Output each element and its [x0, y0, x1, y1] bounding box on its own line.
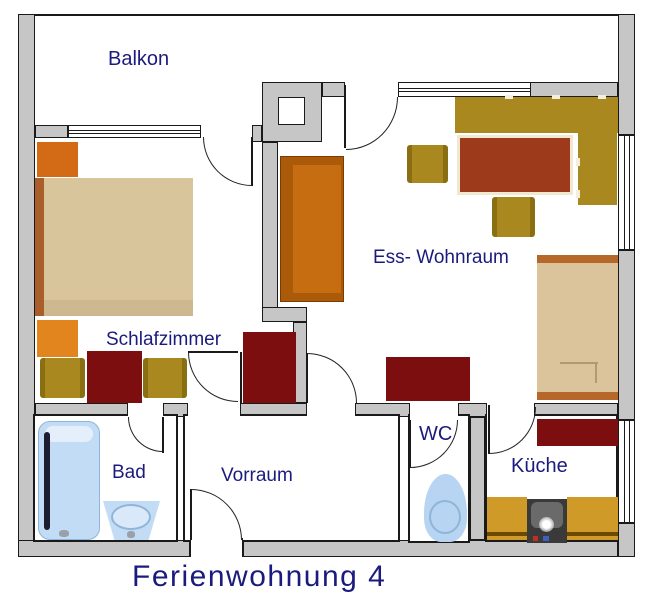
corner-bench-top — [455, 97, 618, 133]
window-glass-line — [629, 421, 630, 522]
plan-title: Ferienwohnung 4 — [132, 560, 386, 594]
room-label-kueche: Küche — [511, 455, 568, 478]
sofa — [280, 156, 344, 302]
bedroom-table — [87, 351, 142, 403]
door-swing-arc — [188, 352, 238, 402]
daybed-head-edge — [537, 255, 618, 263]
window-glass-line — [69, 133, 200, 134]
corner-bench-right — [578, 133, 617, 205]
kitchen-counter-right — [567, 497, 618, 540]
window-glass-line — [629, 136, 630, 249]
sink-faucet — [127, 531, 135, 538]
window-glass-line — [624, 421, 625, 522]
wall-right-bottom — [618, 523, 635, 557]
sink-unit-red-detail — [533, 536, 538, 541]
window-glass-line — [624, 136, 625, 249]
dining-chair — [492, 197, 535, 237]
wall-wc-kitchen — [470, 417, 485, 540]
kitchen-counter-left — [487, 497, 527, 540]
wall-balcony-living-left — [322, 82, 345, 97]
door-swing-arc — [203, 137, 252, 186]
bathtub-faucet — [59, 530, 69, 537]
daybed — [537, 255, 618, 400]
counter-edge-line — [567, 532, 618, 536]
window-glass-line — [69, 130, 200, 131]
sink-basin — [111, 504, 151, 530]
bench-notch — [552, 95, 560, 99]
bench-notch — [598, 95, 606, 99]
wardrobe — [243, 332, 296, 403]
window-bedroom — [68, 125, 201, 138]
door-opening-wc — [410, 412, 458, 418]
room-label-bad: Bad — [112, 462, 146, 484]
bathtub-highlight — [45, 426, 93, 442]
sideboard — [386, 357, 470, 401]
chair — [143, 358, 187, 398]
nightstand — [37, 142, 78, 177]
sink-unit-blue-detail — [543, 536, 549, 541]
room-label-schlafzimmer: Schlafzimmer — [106, 329, 221, 351]
door-opening-bad — [128, 402, 163, 418]
door-swing-arc — [346, 97, 398, 150]
chair — [40, 358, 85, 398]
room-label-balkon: Balkon — [108, 48, 169, 71]
room-label-vorraum: Vorraum — [221, 465, 293, 487]
door-opening-living — [307, 402, 355, 418]
wall-right-middle — [618, 250, 635, 420]
door-frame-line — [240, 352, 242, 403]
sink-unit-glare — [539, 517, 554, 532]
door-opening-entrance — [190, 538, 243, 557]
wall-bottom-left — [18, 540, 190, 557]
sofa-seat — [293, 165, 341, 293]
toilet-bowl — [429, 500, 461, 534]
kitchen-cabinet — [537, 419, 618, 446]
bench-notch — [576, 158, 580, 166]
room-label-ess-wohnraum: Ess- Wohnraum — [373, 247, 509, 269]
bench-notch — [576, 190, 580, 198]
window-glass-line — [399, 88, 530, 89]
window-glass-line — [399, 91, 530, 92]
kitchen-sink-unit — [527, 499, 567, 543]
dining-chair — [407, 145, 448, 183]
daybed-detail-line — [560, 362, 598, 364]
daybed-detail-line — [595, 363, 597, 383]
double-bed — [44, 178, 193, 316]
bathtub-shadow-edge — [44, 432, 50, 530]
bed-footer-shade — [44, 300, 193, 316]
door-swing-arc — [307, 353, 357, 403]
window-kitchen — [618, 420, 635, 523]
wall-balcony-bedroom-stub — [252, 125, 262, 142]
bench-notch — [505, 95, 513, 99]
door-opening-bedroom — [188, 402, 240, 418]
floor-plan: Balkon Schlafzimmer Ess- Wohnraum Bad Vo… — [0, 0, 655, 600]
balcony-railing — [35, 14, 618, 16]
window-living-right — [618, 135, 635, 250]
room-label-wc: WC — [419, 423, 452, 446]
wall-bedroom-living — [262, 142, 278, 309]
daybed-foot-edge — [537, 392, 618, 400]
dining-table — [457, 135, 573, 195]
wall-balcony-bedroom — [35, 125, 68, 138]
bathtub — [38, 421, 100, 540]
bed-headboard — [35, 178, 44, 316]
chimney-shaft — [278, 97, 305, 125]
wall-right-top — [618, 14, 635, 135]
counter-edge-line — [487, 532, 527, 536]
nightstand — [37, 320, 78, 357]
wall-bedroom-living-jog — [262, 307, 307, 322]
